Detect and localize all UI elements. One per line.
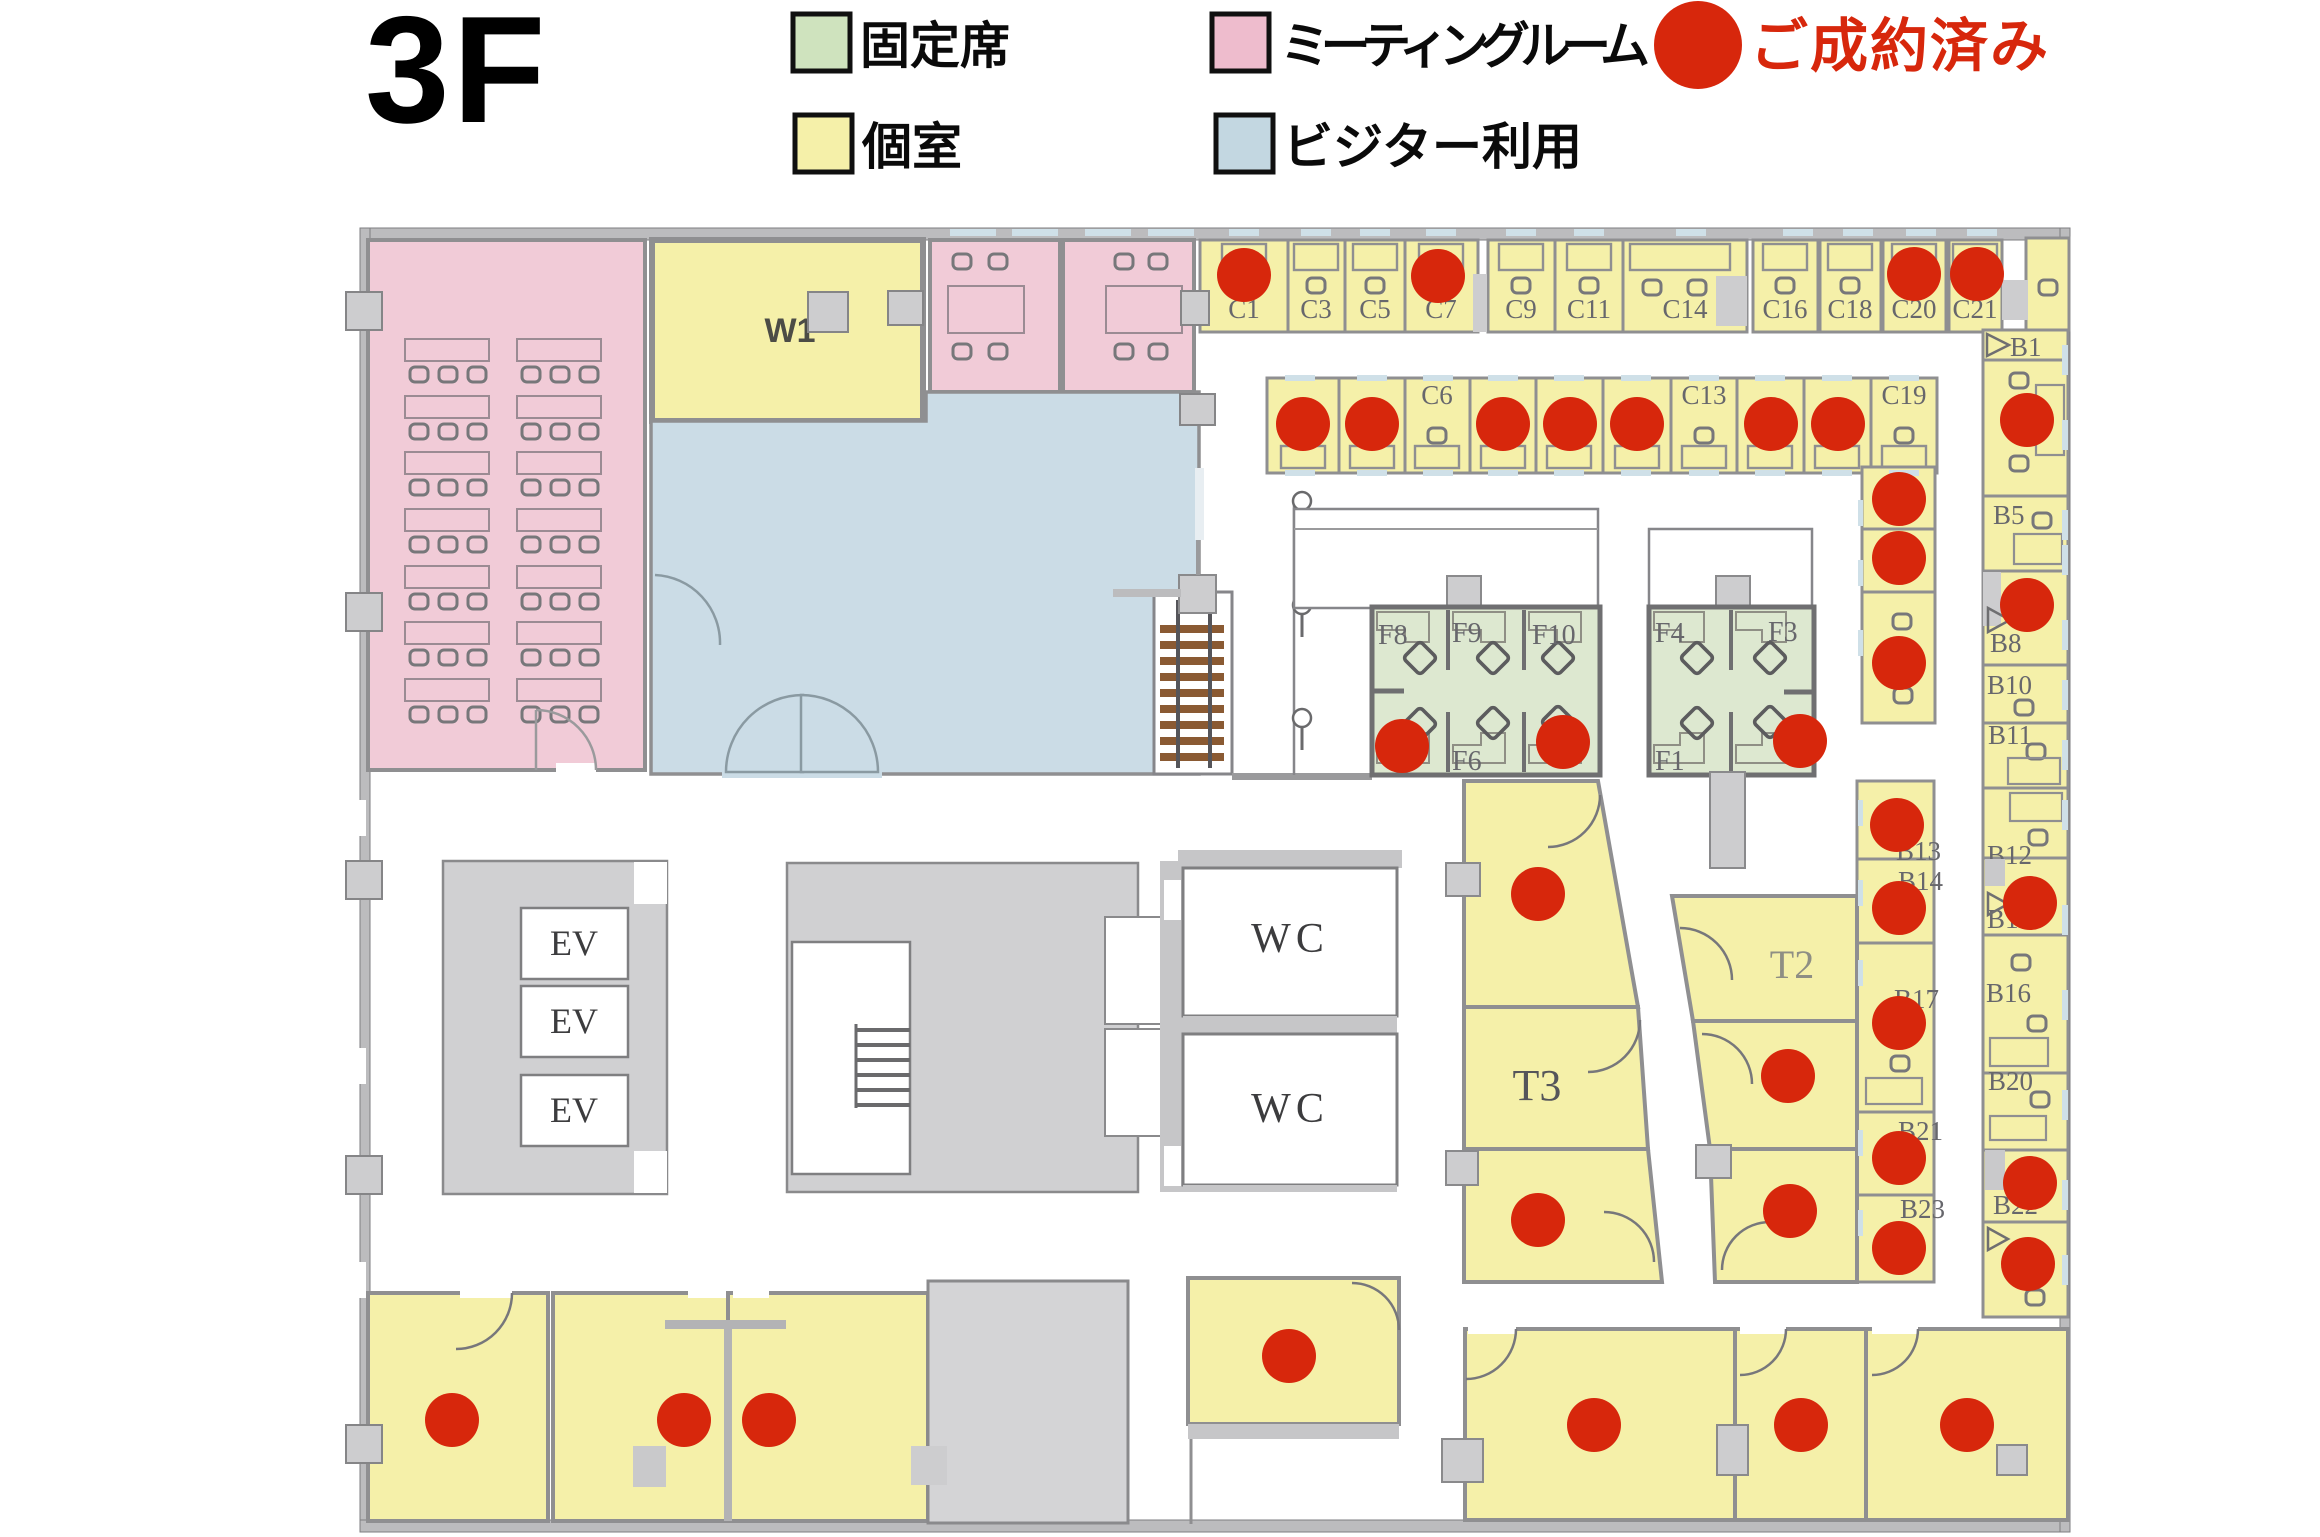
svg-text:C14: C14 — [1662, 294, 1708, 324]
svg-text:C11: C11 — [1567, 294, 1611, 324]
svg-text:C3: C3 — [1300, 294, 1332, 324]
svg-text:EV: EV — [550, 923, 598, 963]
svg-text:C9: C9 — [1505, 294, 1537, 324]
svg-text:C5: C5 — [1359, 294, 1391, 324]
svg-text:ビジター利用: ビジター利用 — [1283, 119, 1582, 175]
svg-text:B20: B20 — [1988, 1066, 2033, 1096]
svg-text:B10: B10 — [1987, 670, 2032, 700]
svg-text:EV: EV — [550, 1090, 598, 1130]
svg-text:WC: WC — [1251, 1086, 1329, 1132]
svg-text:T2: T2 — [1770, 942, 1814, 987]
svg-text:EV: EV — [550, 1001, 598, 1041]
svg-text:B1: B1 — [2010, 332, 2042, 362]
svg-text:B16: B16 — [1986, 978, 2031, 1008]
svg-text:3F: 3F — [365, 0, 548, 155]
svg-text:WC: WC — [1251, 916, 1329, 962]
svg-text:C16: C16 — [1762, 294, 1807, 324]
svg-text:F8: F8 — [1378, 620, 1408, 651]
svg-text:固定席: 固定席 — [860, 18, 1010, 74]
svg-text:C19: C19 — [1881, 380, 1926, 410]
svg-text:C13: C13 — [1681, 380, 1726, 410]
svg-text:C6: C6 — [1421, 380, 1453, 410]
svg-text:B11: B11 — [1988, 720, 2032, 750]
svg-text:個室: 個室 — [861, 119, 962, 175]
svg-text:ご成約済み: ご成約済み — [1750, 14, 2050, 79]
svg-text:C18: C18 — [1827, 294, 1872, 324]
svg-text:F6: F6 — [1452, 746, 1482, 777]
svg-text:T3: T3 — [1513, 1061, 1562, 1110]
svg-text:B8: B8 — [1990, 628, 2022, 658]
svg-text:B23: B23 — [1900, 1194, 1945, 1224]
svg-text:F3: F3 — [1768, 617, 1798, 648]
svg-text:F10: F10 — [1532, 620, 1576, 651]
svg-text:F1: F1 — [1655, 746, 1685, 777]
svg-text:F4: F4 — [1655, 618, 1685, 649]
svg-text:ミーティングルーム: ミーティングルーム — [1280, 18, 1650, 74]
svg-text:B5: B5 — [1993, 500, 2025, 530]
svg-text:F9: F9 — [1452, 618, 1482, 649]
